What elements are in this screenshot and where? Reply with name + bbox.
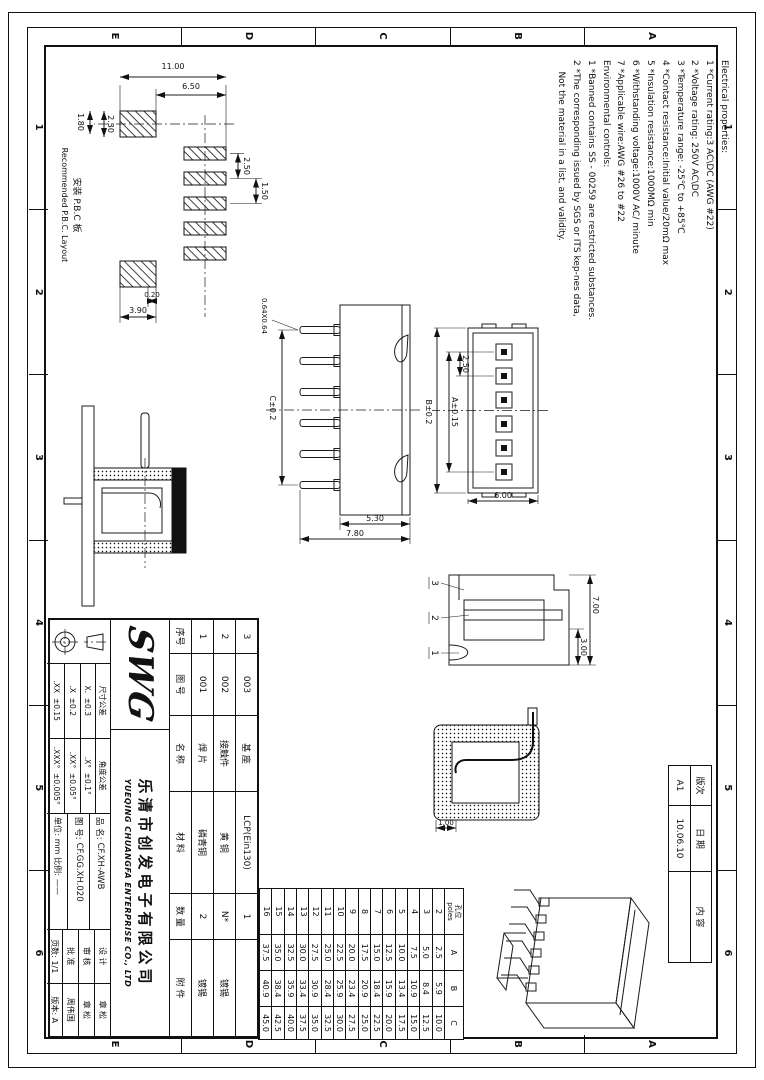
bom-material: 磷青铜: [191, 792, 213, 894]
bom-material: 黄 铜: [213, 792, 235, 894]
scale-label: 比例:: [52, 857, 63, 876]
poles-header-cell: 孔位 poles: [444, 889, 463, 935]
poles-dimension-table: 孔位 poles A B C 2 2.5 5.9 10.0 3 5.0 8.4: [258, 888, 464, 1040]
dim-c-cell: 40.0: [284, 1007, 296, 1039]
drawing-sheet-viewport: 123456 123456 ABCDE ABCDE Electrical pro…: [0, 0, 764, 1080]
detail-section-view: 1.00: [414, 700, 564, 836]
dim-pcb-off: 0.20: [144, 291, 160, 299]
balloon-1: 1: [429, 650, 439, 656]
part-name-value: CF.XH-AWB: [95, 843, 105, 890]
poles-count-cell: 4: [407, 889, 419, 935]
dim-c-cell: 37.5: [296, 1007, 308, 1039]
dim-section-large: 7.00: [591, 596, 600, 614]
bom-row: 2 002 接触件 黄 铜 N* 镀锡: [213, 620, 235, 1036]
dim-c-cell: 45.0: [259, 1007, 271, 1039]
approve-value: 周伟国: [63, 984, 78, 1037]
note-line: 7 *Applicable wire:AWG #26 to #22: [613, 60, 628, 430]
dim-b-cell: 8.4: [419, 971, 431, 1007]
tol-size-header: 尺寸公差: [95, 664, 110, 739]
dim-a-cell: 10.0: [395, 935, 407, 971]
poles-count-cell: 11: [321, 889, 333, 935]
poles-count-cell: 13: [296, 889, 308, 935]
tol-size-3: .XX ±0.15: [49, 664, 64, 739]
dim-a-cell: 7.5: [407, 935, 419, 971]
dim-c-cell: 27.5: [345, 1007, 357, 1039]
balloon-2: 2: [429, 615, 439, 621]
bom-no: 2: [213, 620, 235, 654]
dim-c-cell: 25.0: [358, 1007, 370, 1039]
revision-col-date: 日 期: [690, 806, 711, 872]
drawing-no-label: 图 号:: [73, 817, 85, 840]
dim-a-cell: 37.5: [259, 935, 271, 971]
poles-count-cell: 3: [419, 889, 431, 935]
bom-part-name: 接触件: [213, 716, 235, 792]
revision-table: 版次 日 期 内 容 A1 10.06.10: [668, 765, 712, 963]
bom-qty: N*: [213, 894, 235, 940]
part-info-column: 品 名: CF.XH-AWB 图 号: CF.GG.XH.020 单位: mm …: [47, 814, 110, 930]
dim-b-cell: 38.4: [271, 971, 283, 1007]
design-value: 章 松: [95, 984, 110, 1037]
pcb-layout-label-en: Recommended P.B.C. Layout: [60, 148, 69, 263]
poles-count-cell: 9: [345, 889, 357, 935]
bom-no: 3: [235, 620, 257, 654]
pcb-layout-label-cn: 安装 P.B.C 板: [71, 178, 83, 233]
note-line: 3 *Temperature range: -25℃ to +85℃: [672, 60, 687, 430]
bom-qty: 1: [235, 894, 257, 940]
revision-rev-value: A1: [669, 766, 690, 806]
dim-a-cell: 15.0: [370, 935, 382, 971]
dim-a-cell: 25.0: [321, 935, 333, 971]
title-block-bottom: 尺寸公差 角度公差 X. ±0.3 .X° ±0.1° .X ±0.2 .XX°…: [47, 620, 110, 1036]
zone-column-label: 1: [29, 45, 48, 209]
dim-a-cell: 12.5: [382, 935, 394, 971]
pages-cell: 页数: 1/1: [47, 930, 62, 984]
part-name-label: 品 名:: [94, 817, 106, 840]
poles-header-en: poles: [446, 902, 454, 921]
tol-angle-3: .XXX° ±0.005°: [49, 739, 64, 814]
dim-pcb-pad2: 1.80: [76, 113, 85, 131]
tol-size-2: .X ±0.2: [64, 664, 79, 739]
front-view: 2.50 A±0.15 B±0.2 6.00: [424, 318, 556, 506]
poles-table-row: 9 20.0 23.4 27.5: [345, 889, 357, 1039]
poles-table-row: 7 15.0 18.4 22.5: [370, 889, 382, 1039]
company-logo: SWG: [120, 623, 160, 726]
dim-side-span-c: C±0.2: [268, 395, 277, 420]
dim-side-body: 5.30: [366, 514, 384, 523]
zone-column-label: 5: [29, 705, 48, 870]
dim-a-cell: 20.0: [345, 935, 357, 971]
balloon-3: 3: [429, 580, 439, 586]
dim-c-cell: 20.0: [382, 1007, 394, 1039]
zone-column-label: 6: [718, 870, 737, 1035]
approve-label: 批 准: [63, 930, 78, 984]
poles-table-row: 15 35.0 38.4 42.5: [271, 889, 283, 1039]
note-line: 2 *The corresponding issued by SGS or IT…: [568, 60, 583, 430]
dim-b-cell: 30.9: [308, 971, 320, 1007]
note-line: Electrical properties:: [716, 60, 731, 430]
poles-count-cell: 10: [333, 889, 345, 935]
poles-count-cell: 5: [395, 889, 407, 935]
zone-row-label: C: [316, 27, 450, 45]
poles-table-row: 6 12.5 15.9 20.0: [382, 889, 394, 1039]
bom-finish: 镀锡: [191, 940, 213, 1036]
dim-b-cell: 33.4: [296, 971, 308, 1007]
bom-part-name: 焊 片: [191, 716, 213, 792]
version-value: A: [50, 1018, 59, 1023]
dim-side-total: 7.80: [346, 529, 364, 538]
dim-pcb-big: 3.90: [129, 306, 147, 315]
dim-b-cell: 35.9: [284, 971, 296, 1007]
dim-c-cell: 22.5: [370, 1007, 382, 1039]
poles-count-cell: 15: [271, 889, 283, 935]
dim-pcb-inner: 6.50: [182, 82, 200, 91]
note-line: 4 *Contact resistance:Initial value/20mΩ…: [657, 60, 672, 430]
poles-table-row: 3 5.0 8.4 12.5: [419, 889, 431, 1039]
title-block: 3 003 基 座 LCP(Ein130) 1 2 002 接触件 黄 铜 N*…: [48, 618, 259, 1038]
poles-count-cell: 2: [432, 889, 444, 935]
poles-table-body: 2 2.5 5.9 10.0 3 5.0 8.4 12.5 4 7.5 10.9: [259, 889, 444, 1039]
dim-pcb-overall: 11.00: [162, 62, 185, 71]
dim-section-small: 3.00: [579, 638, 588, 656]
zone-column-label: 6: [29, 870, 48, 1035]
poles-count-cell: 16: [259, 889, 271, 935]
note-line: Environmental controls:: [598, 60, 613, 430]
zone-column-label: 4: [718, 540, 737, 705]
dim-c-cell: 10.0: [432, 1007, 444, 1039]
dim-c-cell: 35.0: [308, 1007, 320, 1039]
dim-c-cell: 12.5: [419, 1007, 431, 1039]
dim-b-cell: 10.9: [407, 971, 419, 1007]
dim-front-span-a: A±0.15: [450, 397, 459, 427]
poles-table-row: 16 37.5 40.9 45.0: [259, 889, 271, 1039]
dim-b-cell: 20.9: [358, 971, 370, 1007]
company-logo-cell: SWG: [111, 620, 169, 730]
electrical-properties-notes: Electrical properties:1 *Current rating:…: [553, 60, 731, 430]
dim-a-cell: 27.5: [308, 935, 320, 971]
drawing-sheet: 123456 123456 ABCDE ABCDE Electrical pro…: [0, 0, 764, 1080]
dim-pcb-pitch: 2.50: [242, 157, 251, 175]
poles-count-cell: 12: [308, 889, 320, 935]
note-line: 5 *Insulation resistance:1000MΩ min: [642, 60, 657, 430]
dim-b-cell: 18.4: [370, 971, 382, 1007]
poles-count-cell: 8: [358, 889, 370, 935]
poles-table-row: 4 7.5 10.9 15.0: [407, 889, 419, 1039]
bom-finish: 镀锡: [213, 940, 235, 1036]
note-line: 1 *Banned contains SS - 00259 are restri…: [583, 60, 598, 430]
bom-rows: 3 003 基 座 LCP(Ein130) 1 2 002 接触件 黄 铜 N*…: [191, 620, 257, 1036]
poles-table-row: 14 32.5 35.9 40.0: [284, 889, 296, 1039]
bom-dwg-no: 002: [213, 654, 235, 716]
third-angle-projection-icon: [50, 624, 108, 660]
poles-count-cell: 14: [284, 889, 296, 935]
poles-count-cell: 6: [382, 889, 394, 935]
dim-b-cell: 23.4: [345, 971, 357, 1007]
poles-count-cell: 7: [370, 889, 382, 935]
zone-row-label: D: [182, 27, 316, 45]
zone-column-label: 4: [29, 540, 48, 705]
poles-table-row: 13 30.0 33.4 37.5: [296, 889, 308, 1039]
bom-row: 1 001 焊 片 磷青铜 2 镀锡: [191, 620, 213, 1036]
revision-content-value: [669, 872, 690, 962]
dim-a-cell: 5.0: [419, 935, 431, 971]
dim-a-cell: 32.5: [284, 935, 296, 971]
design-label: 设 计: [95, 930, 110, 984]
tol-size-1: X. ±0.3: [80, 664, 95, 739]
version-label: 版本:: [49, 996, 60, 1015]
poles-table-row: 8 17.5 20.9 25.0: [358, 889, 370, 1039]
dim-c-cell: 15.0: [407, 1007, 419, 1039]
bom-header-material: 材 料: [169, 792, 191, 894]
section-view: 7.00 3.00 3 2 1: [422, 545, 604, 705]
revision-date-value: 10.06.10: [669, 806, 690, 872]
note-line: 2 *Voltage rating: 250V AC\DC: [687, 60, 702, 430]
bom-dwg-no: 003: [235, 654, 257, 716]
bom-header-no: 序号: [169, 620, 191, 654]
company-name-en: YUEQING CHUANGFA ENTERPRISE CO., LTD: [124, 779, 133, 988]
dim-b-cell: 40.9: [259, 971, 271, 1007]
note-line: 1 *Current rating:3 AC\DC (AWG #22): [701, 60, 716, 430]
dim-c-cell: 42.5: [271, 1007, 283, 1039]
side-view: 5.30 7.80 C±0.2 0.64X0.64: [257, 290, 422, 548]
dim-a-cell: 17.5: [358, 935, 370, 971]
dim-b-cell: 25.9: [333, 971, 345, 1007]
dim-c-cell: 17.5: [395, 1007, 407, 1039]
poles-table-row: 10 22.5 25.9 30.0: [333, 889, 345, 1039]
tolerance-table: 尺寸公差 角度公差 X. ±0.3 .X° ±0.1° .X ±0.2 .XX°…: [47, 664, 110, 814]
col-c-header: C: [444, 1007, 463, 1039]
dim-b-cell: 28.4: [321, 971, 333, 1007]
col-a-header: A: [444, 935, 463, 971]
unit-label: 单位:: [52, 817, 63, 836]
dim-pcb-pad1: 2.30: [106, 115, 115, 133]
dim-front-pitch: 2.50: [461, 355, 470, 373]
bom-header-dwg: 图 号: [169, 654, 191, 716]
zone-row-label: A: [585, 27, 718, 45]
poles-header-cn: 孔位: [454, 905, 462, 919]
dim-b-cell: 13.4: [395, 971, 407, 1007]
tol-angle-2: .XX° ±0.05°: [64, 739, 79, 814]
poles-table-row: 12 27.5 30.9 35.0: [308, 889, 320, 1039]
mount-section-view: [54, 398, 244, 613]
bom-header-qty: 数 量: [169, 894, 191, 940]
check-value: 章 松: [79, 984, 94, 1037]
bom-row: 3 003 基 座 LCP(Ein130) 1: [235, 620, 257, 1036]
signoff-column: 设 计 章 松 审 核 章 松 批 准 周伟国 页数: 1/1: [47, 930, 110, 1036]
bom-dwg-no: 001: [191, 654, 213, 716]
company-name-cell: 乐清市创发电子有限公司 YUEQING CHUANGFA ENTERPRISE …: [111, 730, 169, 1036]
zone-rows-left: ABCDE: [48, 27, 718, 45]
poles-table-header: 孔位 poles A B C: [444, 889, 463, 1039]
unit-value: mm: [53, 839, 62, 855]
dim-side-pin-size: 0.64X0.64: [260, 298, 268, 335]
dim-a-cell: 22.5: [333, 935, 345, 971]
zone-row-label: E: [48, 27, 182, 45]
zone-column-label: 3: [29, 374, 48, 539]
dim-a-cell: 35.0: [271, 935, 283, 971]
version-cell: 版本: A: [47, 984, 62, 1037]
bom-part-name: 基 座: [235, 716, 257, 792]
revision-col-content: 内 容: [690, 872, 711, 962]
col-b-header: B: [444, 971, 463, 1007]
bom-material: LCP(Ein130): [235, 792, 257, 894]
dim-a-cell: 2.5: [432, 935, 444, 971]
dim-pcb-gap: 1.50: [260, 182, 269, 200]
poles-table-row: 5 10.0 13.4 17.5: [395, 889, 407, 1039]
zone-column-label: 2: [29, 209, 48, 374]
company-name-cn: 乐清市创发电子有限公司: [136, 778, 157, 987]
dim-c-cell: 30.0: [333, 1007, 345, 1039]
scale-value: ——: [53, 879, 62, 895]
revision-col-rev: 版次: [690, 766, 711, 806]
bom-qty: 2: [191, 894, 213, 940]
zone-column-label: 5: [718, 705, 737, 870]
poles-table-row: 2 2.5 5.9 10.0: [432, 889, 444, 1039]
dim-front-span-b: B±0.2: [424, 400, 433, 425]
drawing-no-value: CF.GG.XH.020: [74, 843, 84, 902]
zone-row-label: B: [451, 27, 585, 45]
dim-b-cell: 15.9: [382, 971, 394, 1007]
tol-angle-header: 角度公差: [95, 739, 110, 814]
zone-columns-bottom: 123456: [29, 45, 48, 1035]
bom-finish: [235, 940, 257, 1036]
check-label: 审 核: [79, 930, 94, 984]
dim-c-cell: 32.5: [321, 1007, 333, 1039]
bom-header-name: 名 称: [169, 716, 191, 792]
pages-value: 1/1: [50, 960, 59, 973]
dim-detail: 1.00: [438, 819, 454, 827]
dim-front-height: 6.00: [494, 491, 512, 500]
isometric-view: [464, 838, 669, 1038]
note-line: 6 *Withstanding voltage:1000V AC/ minute: [627, 60, 642, 430]
projection-symbol-cell: [47, 620, 110, 664]
poles-table-row: 11 25.0 28.4 32.5: [321, 889, 333, 1039]
pages-label: 页数:: [49, 939, 60, 958]
bom-no: 1: [191, 620, 213, 654]
bom-header-finish: 附 件: [169, 940, 191, 1036]
company-band: SWG 乐清市创发电子有限公司 YUEQING CHUANGFA ENTERPR…: [110, 620, 169, 1036]
tol-angle-1: .X° ±0.1°: [80, 739, 95, 814]
dim-a-cell: 30.0: [296, 935, 308, 971]
dim-b-cell: 5.9: [432, 971, 444, 1007]
bom-header-row: 序号 图 号 名 称 材 料 数 量 附 件: [169, 620, 191, 1036]
